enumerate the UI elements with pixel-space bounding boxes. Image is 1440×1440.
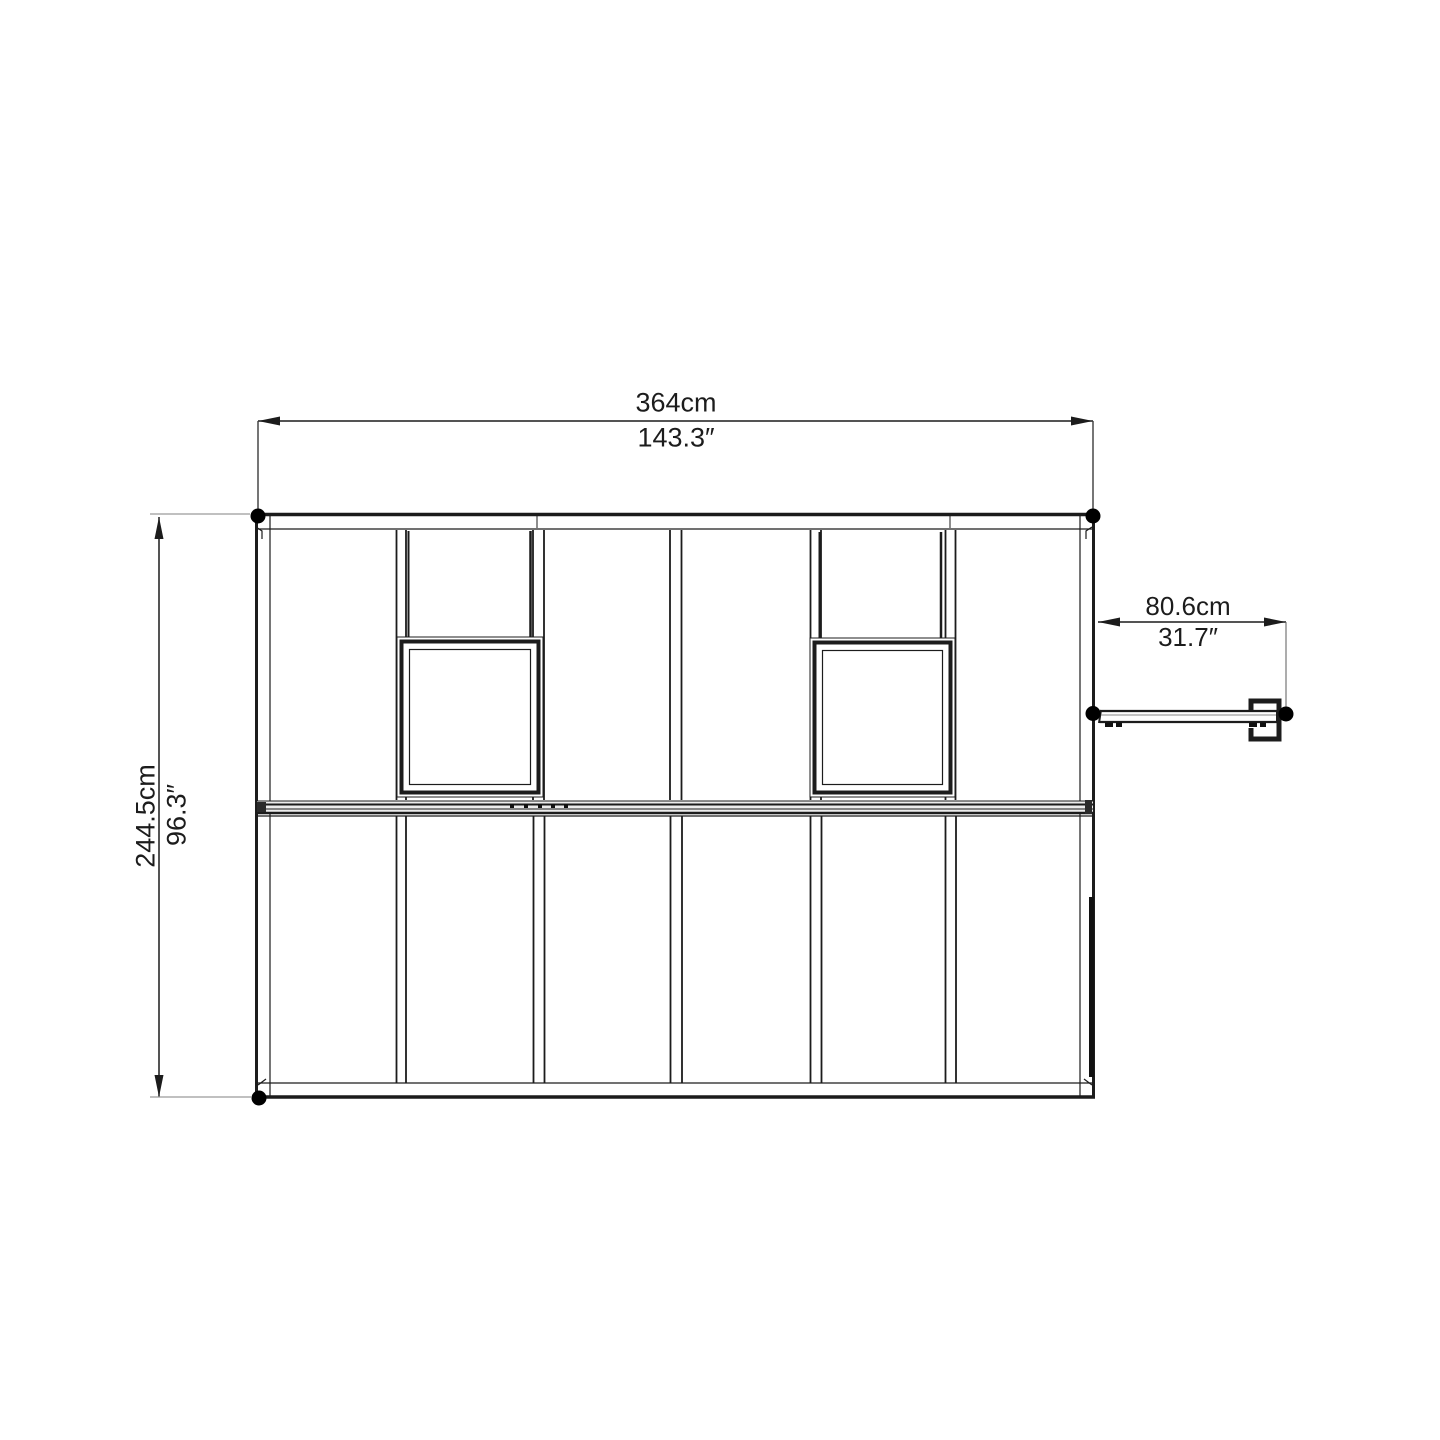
arrowhead-bottom bbox=[155, 1075, 164, 1097]
roof-vent-right bbox=[810, 638, 955, 797]
ridge-bar bbox=[257, 800, 1093, 814]
anchor-dot-door-end bbox=[1279, 707, 1294, 722]
door-extension-imperial-label: 31.7″ bbox=[1158, 624, 1218, 650]
door-slide-assembly bbox=[1099, 701, 1279, 739]
depth-imperial-label: 96.3″ bbox=[164, 784, 191, 846]
greenhouse-top-view-drawing bbox=[0, 0, 1440, 1440]
anchor-dot-top-right bbox=[1086, 509, 1101, 524]
arrowhead-top bbox=[155, 517, 164, 539]
door-track-segment bbox=[1089, 897, 1094, 1077]
arrowhead-left bbox=[258, 417, 280, 426]
arrowhead-left bbox=[1098, 618, 1120, 627]
anchor-dot-top-left bbox=[251, 509, 266, 524]
width-metric-label: 364cm bbox=[635, 390, 716, 417]
door-bar-feet bbox=[1105, 723, 1266, 728]
diagram-canvas: 364cm 143.3″ 244.5cm 96.3″ 80.6cm 31.7″ bbox=[0, 0, 1440, 1440]
door-extension-metric-label: 80.6cm bbox=[1145, 593, 1230, 619]
ridge-end-connector-left bbox=[257, 802, 266, 812]
ridge-end-connector-right bbox=[1085, 800, 1092, 814]
roof-panels-lower bbox=[257, 816, 1093, 1083]
arrowhead-right bbox=[1264, 618, 1286, 627]
arrowhead-right bbox=[1071, 417, 1093, 426]
anchor-dot-bottom-left bbox=[252, 1091, 267, 1106]
width-imperial-label: 143.3″ bbox=[637, 425, 714, 452]
depth-metric-label: 244.5cm bbox=[133, 764, 160, 868]
anchor-dot-door-frame bbox=[1086, 706, 1101, 721]
vent-upper-subpanels bbox=[409, 531, 942, 639]
roof-vent-left bbox=[397, 637, 543, 797]
